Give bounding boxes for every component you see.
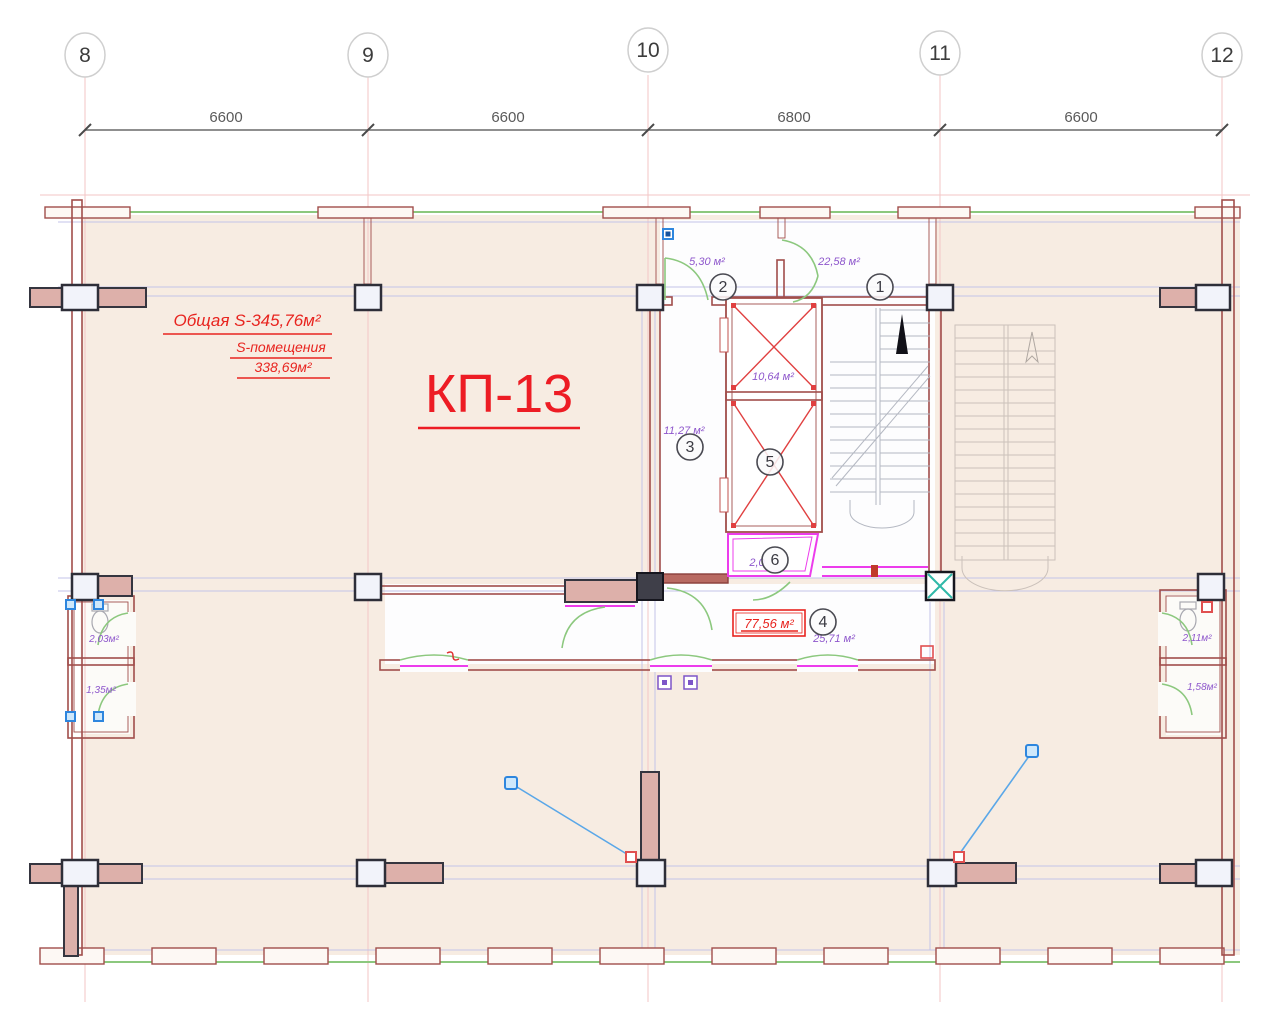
shaft-door [720,478,728,512]
svg-text:77,56 м²: 77,56 м² [744,616,794,631]
wall-stub [385,863,443,883]
svg-text:4: 4 [819,614,828,631]
wall-stub [1160,288,1196,307]
shaft-door [720,318,728,352]
room-number-2: 2 [710,274,736,300]
wall-stub [565,580,637,602]
leader-target-red [626,852,636,862]
column [72,574,98,600]
wall-stub [1160,864,1196,883]
dimension-label: 6800 [777,109,810,126]
window-pier [1160,948,1224,964]
svg-text:5: 5 [766,454,775,471]
window-pier [760,207,830,218]
dimension-label: 6600 [209,109,242,126]
column [928,860,956,886]
svg-text:6: 6 [771,552,780,569]
room-number-5: 5 [757,449,783,475]
partition-post [871,565,878,577]
wall-stub [956,863,1016,883]
window-pier [603,207,690,218]
column [62,285,98,310]
dimension-label: 6600 [491,109,524,126]
wall-stub [30,288,62,307]
column [637,860,665,886]
axis-number: 10 [636,39,659,62]
axis-header: 6600 6600 6800 6600 8 9 10 11 12 [65,28,1242,136]
room-number-1: 1 [867,274,893,300]
column [927,285,953,310]
room-number-6: 6 [762,547,788,573]
window-pier [898,207,970,218]
wall-stub-v [64,886,78,956]
floor-plan-page: 6600 6600 6800 6600 8 9 10 11 12 Общая S… [0,0,1280,1009]
floor-plan-drawing: 6600 6600 6800 6600 8 9 10 11 12 Общая S… [0,0,1280,1009]
window-pier [488,948,552,964]
wall-stub [98,864,142,883]
svg-text:1: 1 [876,279,885,296]
column [62,860,98,886]
room-number-3: 3 [677,434,703,460]
wall-stub-v [641,772,659,860]
leader-target-red [954,852,964,862]
window-pier [1048,948,1112,964]
axis-number: 11 [929,42,951,65]
room-area-label: 5,30 м² [689,256,725,268]
wc-left-fill [80,600,130,734]
wc-area-label: 2,11м² [1182,633,1213,644]
window-pier [936,948,1000,964]
window-pier [264,948,328,964]
window-pier [45,207,130,218]
wc-area-label: 1,35м² [86,685,116,696]
column [637,285,663,310]
premises-area-value: 338,69м² [254,359,312,375]
leader-handle-blue [505,777,517,789]
column [1196,860,1232,886]
dimension-label: 6600 [1064,109,1097,126]
sensor-dot [666,232,671,237]
unit-title: КП-13 [425,364,573,424]
room-area-label: 22,58 м² [817,256,860,268]
column-dark [637,573,663,600]
svg-text:2: 2 [719,279,728,296]
column [1196,285,1230,310]
wc-area-label: 1,58м² [1187,682,1217,693]
window-pier [318,207,413,218]
sensor-marker [1202,602,1212,612]
premises-label: S-помещения [236,339,326,355]
window-pier [600,948,664,964]
room-number-4: 4 [810,609,836,635]
total-area-label: Общая S-345,76м² [173,311,321,330]
axis-number: 12 [1210,44,1233,67]
room-area-label: 10,64 м² [752,371,794,383]
column [355,285,381,310]
column-teal-x [926,572,954,600]
elevator-shafts [720,298,822,576]
wc-area-label: 2,03м² [88,634,119,645]
window-pier [824,948,888,964]
wall-stub [98,576,132,596]
window-pier [712,948,776,964]
wall-stub [98,288,146,307]
axis-number: 9 [362,44,374,67]
axis-number: 8 [79,44,91,67]
column [1198,574,1224,600]
column [357,860,385,886]
boxed-area-label: 77,56 м² [733,610,805,636]
leader-handle-blue [1026,745,1038,757]
wall-stub [30,864,62,883]
svg-text:3: 3 [686,439,695,456]
window-pier [152,948,216,964]
column [355,574,381,600]
window-pier [376,948,440,964]
wall-corridor-bottom [663,574,728,583]
